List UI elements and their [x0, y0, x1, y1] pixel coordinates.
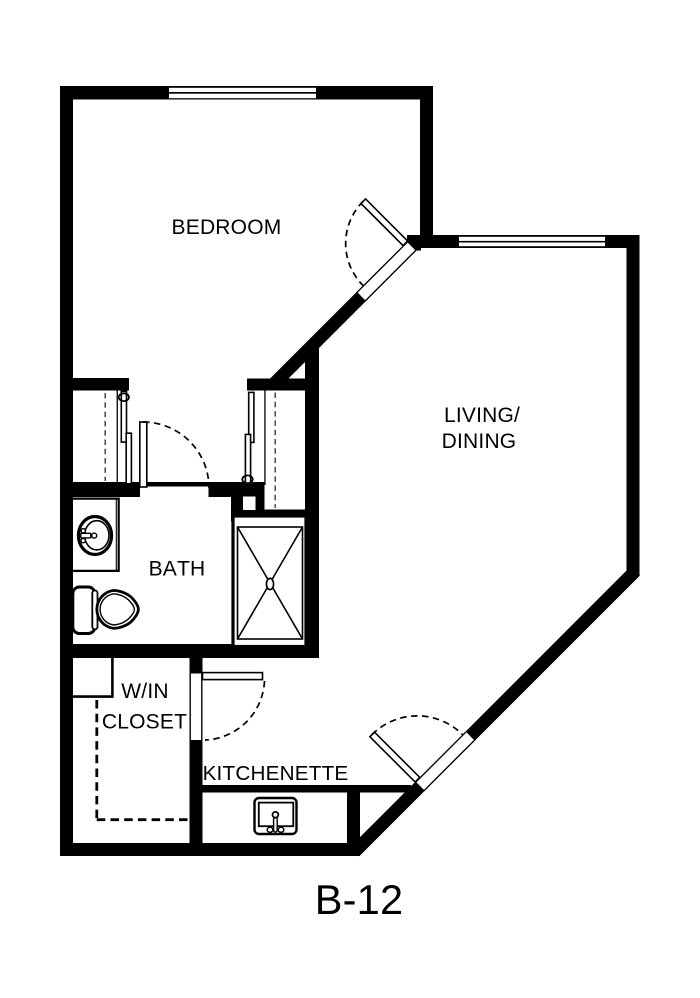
svg-text:KITCHENETTE: KITCHENETTE [203, 762, 349, 785]
svg-text:CLOSET: CLOSET [102, 711, 187, 734]
svg-text:W/IN: W/IN [121, 680, 168, 703]
svg-text:BEDROOM: BEDROOM [172, 216, 282, 239]
svg-text:DINING: DINING [442, 430, 517, 453]
svg-text:B-12: B-12 [315, 876, 403, 923]
svg-text:BATH: BATH [149, 558, 206, 581]
svg-text:LIVING/: LIVING/ [444, 404, 520, 427]
